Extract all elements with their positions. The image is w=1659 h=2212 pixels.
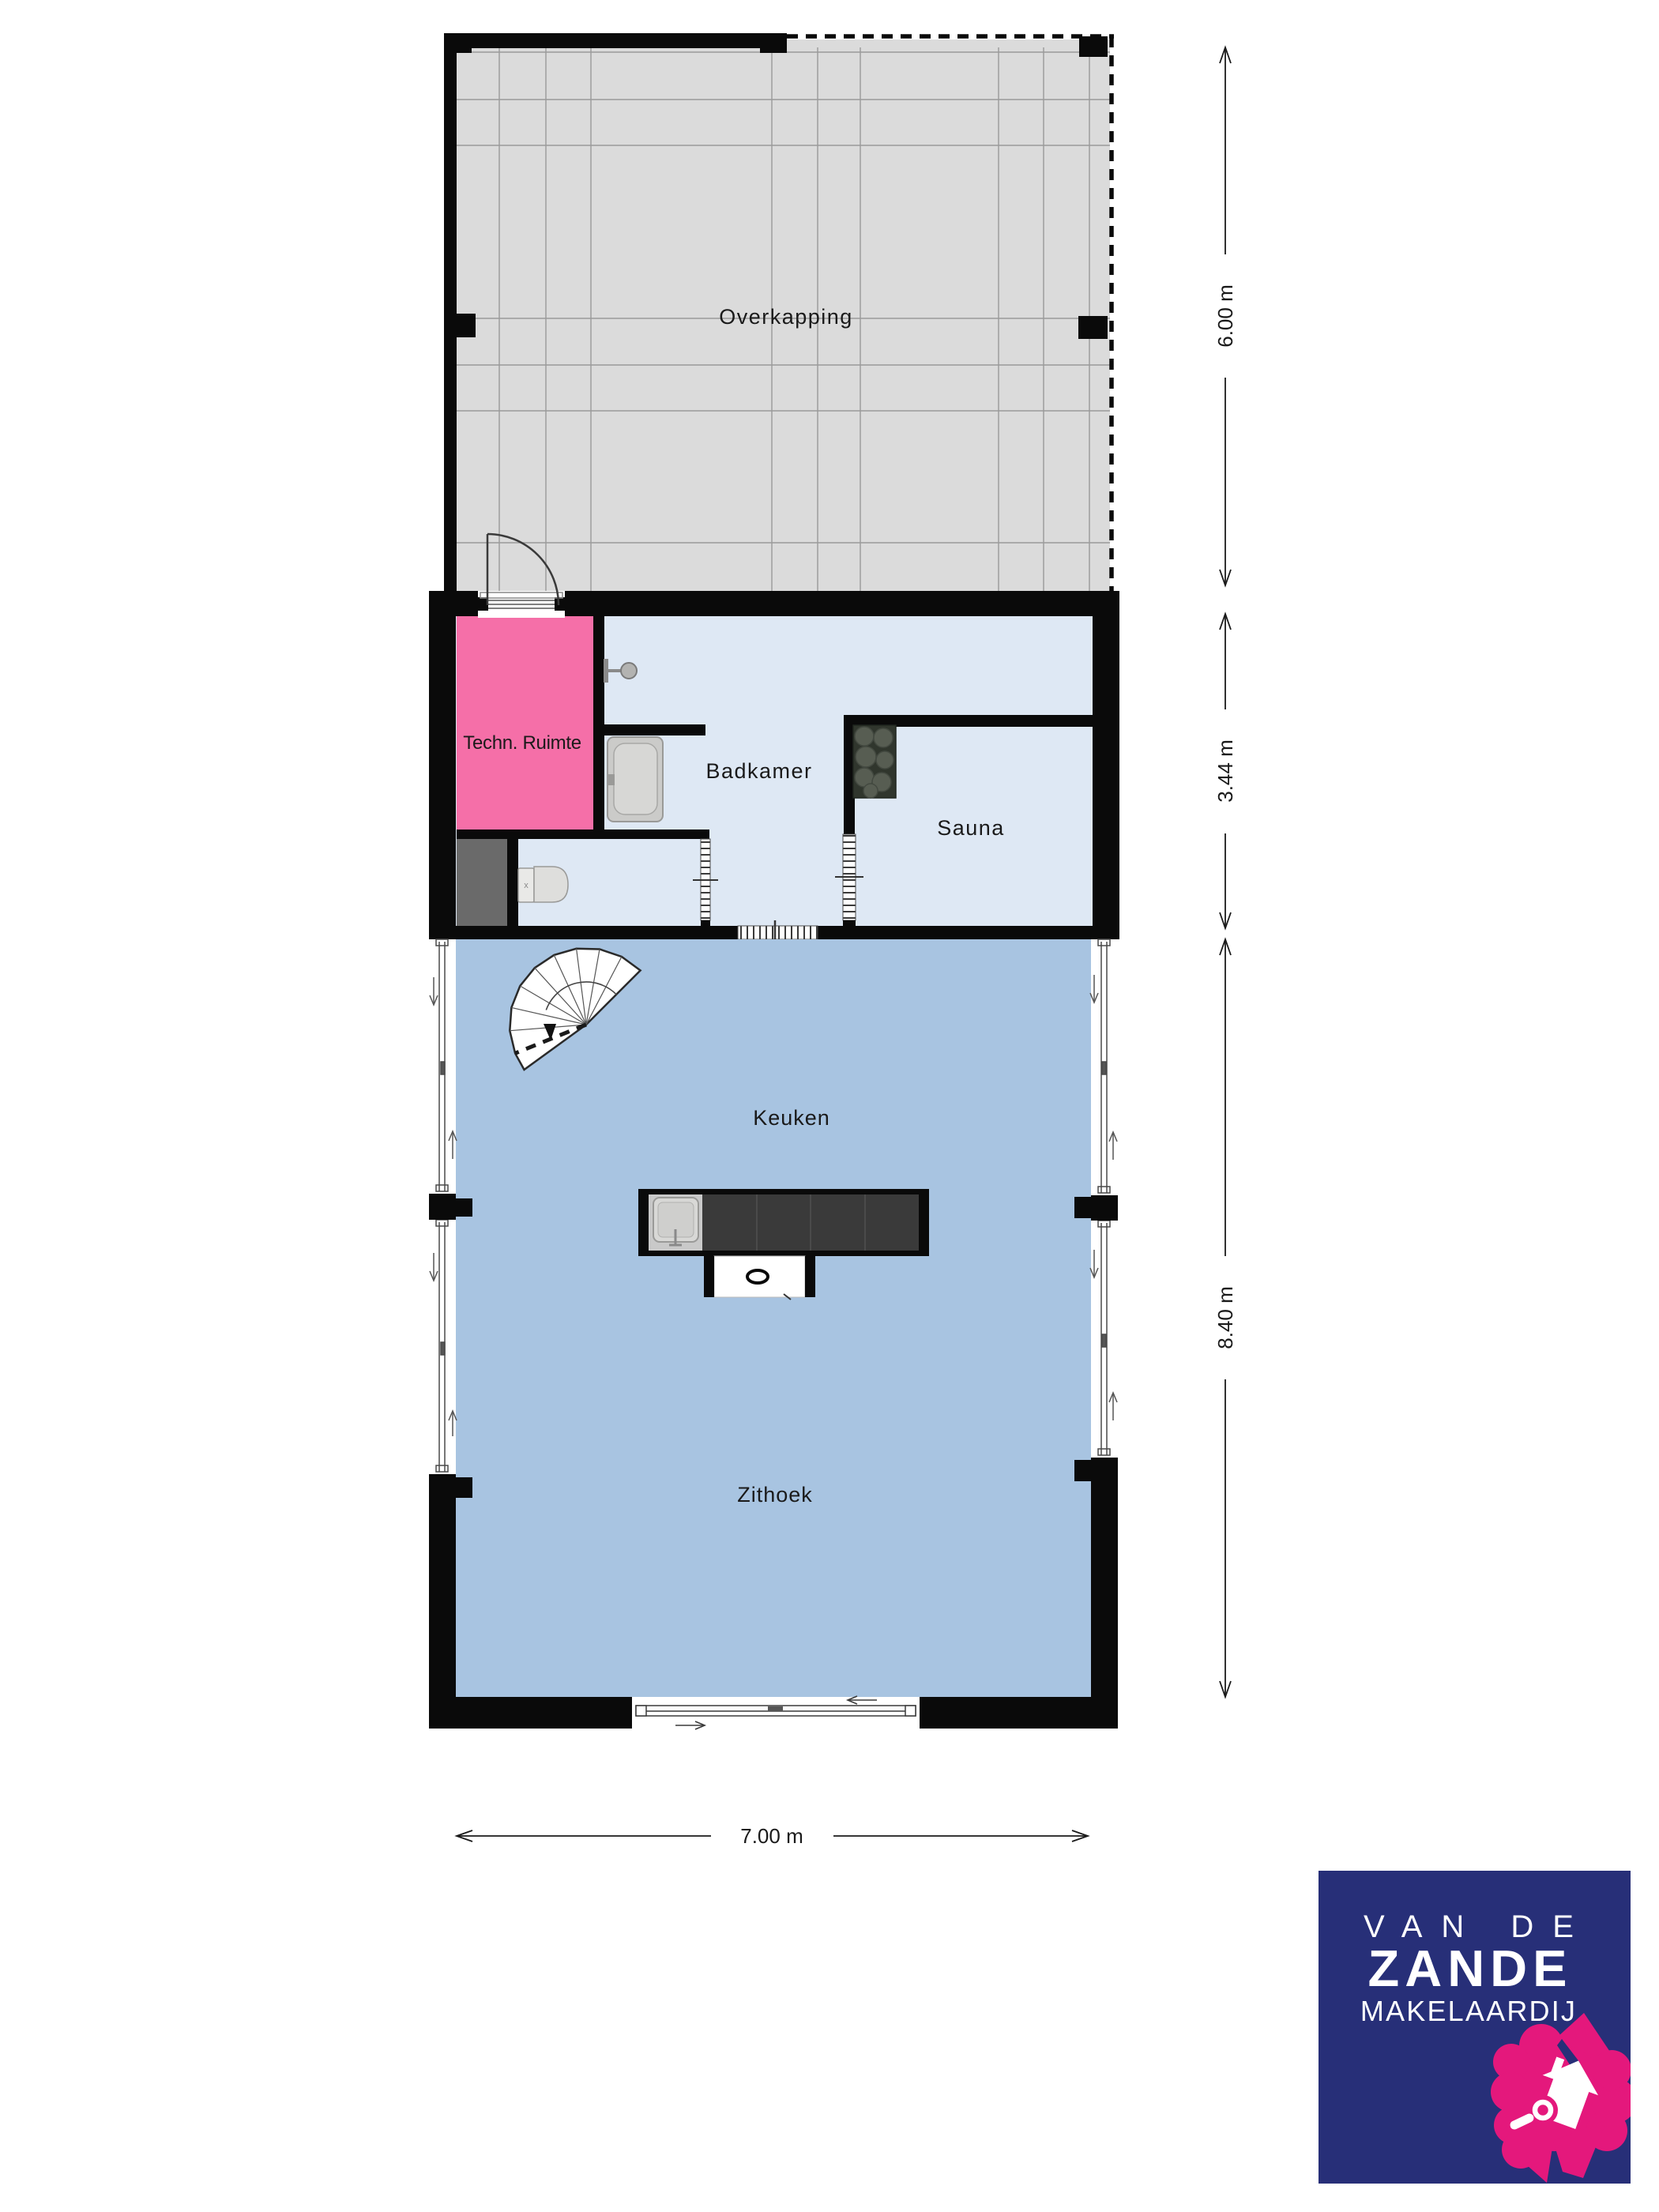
svg-text:ZANDE: ZANDE	[1368, 1939, 1573, 1997]
svg-text:Overkapping: Overkapping	[719, 305, 853, 329]
svg-text:Zithoek: Zithoek	[737, 1483, 813, 1507]
svg-text:6.00 m: 6.00 m	[1213, 284, 1237, 348]
svg-text:Keuken: Keuken	[753, 1106, 830, 1130]
svg-text:Sauna: Sauna	[937, 816, 1005, 840]
svg-text:x: x	[524, 881, 529, 890]
svg-text:8.40 m: 8.40 m	[1213, 1286, 1237, 1349]
svg-text:7.00 m: 7.00 m	[740, 1824, 803, 1848]
svg-text:3.44 m: 3.44 m	[1213, 739, 1237, 803]
svg-text:Techn. Ruimte: Techn. Ruimte	[463, 732, 581, 754]
svg-text:Badkamer: Badkamer	[705, 759, 812, 783]
svg-text:MAKELAARDIJ: MAKELAARDIJ	[1360, 1995, 1577, 2027]
